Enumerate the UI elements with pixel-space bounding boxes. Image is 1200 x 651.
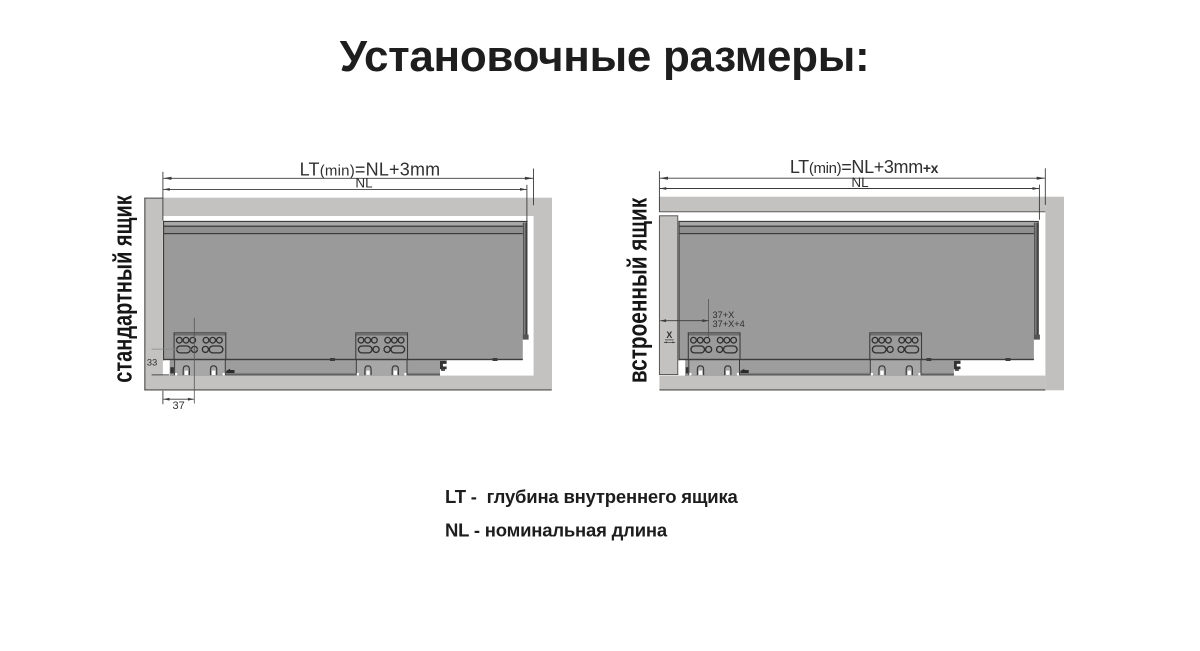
svg-text:Установочные размеры:: Установочные размеры: xyxy=(340,32,870,81)
svg-text:33: 33 xyxy=(147,358,158,369)
svg-text:LT - глубина внутреннего ящик: LT - глубина внутреннего ящика xyxy=(445,486,739,507)
svg-text:NL: NL xyxy=(851,175,869,190)
svg-text:NL - номинальная длина: NL - номинальная длина xyxy=(445,520,668,541)
svg-text:X: X xyxy=(666,330,672,340)
svg-text:37+X+4: 37+X+4 xyxy=(713,319,745,329)
svg-text:NL: NL xyxy=(355,175,373,190)
svg-text:37: 37 xyxy=(172,400,184,412)
svg-text:встроенный ящик: встроенный ящик xyxy=(623,197,653,383)
svg-text:LT(min)=NL+3mm+x: LT(min)=NL+3mm+x xyxy=(790,157,939,177)
svg-text:стандартный ящик: стандартный ящик xyxy=(108,195,137,383)
